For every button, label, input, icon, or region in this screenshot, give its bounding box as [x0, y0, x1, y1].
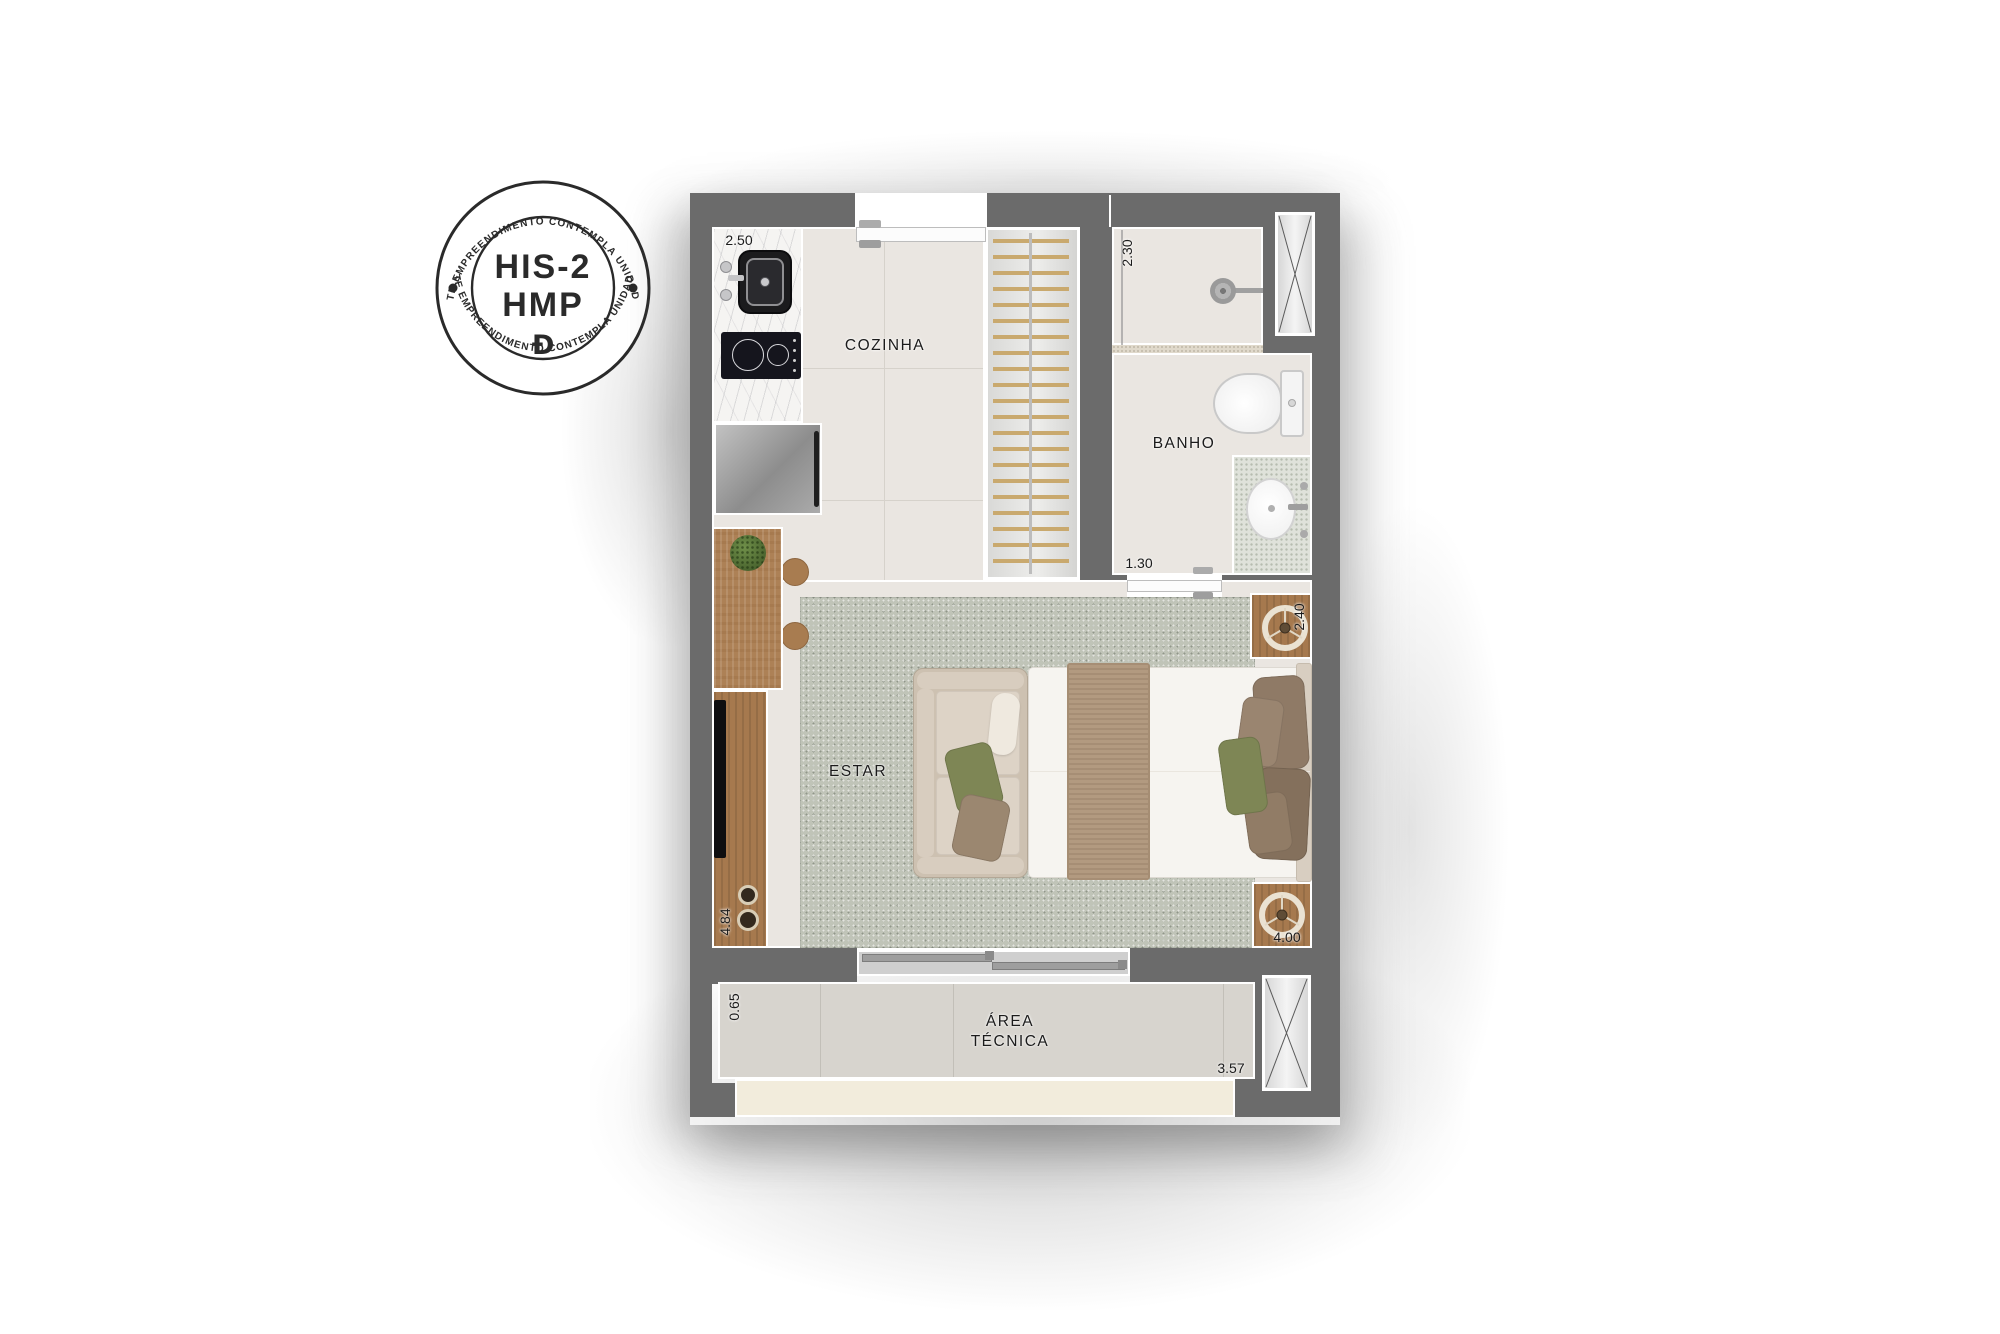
ventilation-shaft-bottom-icon: [1262, 975, 1311, 1091]
dim-label-living-width: 4.00: [1273, 929, 1300, 945]
sliding-door-handle-icon: [985, 951, 994, 960]
badge-title-line1: HIS-2: [495, 248, 592, 286]
wall-left-bottom-stub: [690, 1083, 735, 1117]
bathroom-door-handle-icon: [1193, 592, 1213, 599]
wall-kitchen-bath-divider: [1078, 193, 1112, 597]
dim-label-kitchen-width: 2.50: [725, 232, 752, 248]
wall-top-left: [690, 193, 855, 227]
badge-graphic: ESTE EMPREENDIMENTO CONTEMPLA UNIDADES E…: [433, 178, 653, 398]
washing-machine: [714, 423, 822, 515]
decor-bowl-icon: [738, 885, 758, 905]
stool-icon: [781, 622, 809, 650]
vanity-faucet-knob-icon: [1300, 530, 1308, 538]
dim-label-living-length: 4.84: [717, 908, 733, 935]
kitchen-faucet-icon: [720, 261, 732, 273]
kitchen-floor-seam: [884, 229, 885, 593]
dim-label-bath-length: 2.30: [1119, 239, 1135, 266]
tv-icon: [714, 700, 726, 858]
sliding-door-handle-icon: [1118, 960, 1127, 969]
shadow-right: [1310, 500, 1510, 1160]
sliding-door-panel: [992, 962, 1125, 970]
ventilation-shaft-top-icon: [1275, 212, 1315, 336]
dim-label-tech-area-width: 3.57: [1217, 1060, 1244, 1076]
kitchen-sink-drain-icon: [760, 277, 770, 287]
unit-type-badge: ESTE EMPREENDIMENTO CONTEMPLA UNIDADES E…: [433, 178, 653, 398]
badge-developer-logo-icon: Ɖ: [532, 330, 555, 361]
shower-threshold: [1112, 345, 1263, 353]
floor-plan: COZINHA BANHO ESTAR ÁREA TÉCNICA 2.50 2.…: [690, 193, 1340, 1125]
cooktop-burner-icon: [767, 344, 789, 366]
cooktop-burner-icon: [732, 339, 764, 371]
dim-label-bed-width: 2.40: [1291, 603, 1307, 630]
wardrobe-rod: [1029, 233, 1032, 574]
stool-icon: [781, 558, 809, 586]
page: ESTE EMPREENDIMENTO CONTEMPLA UNIDADES E…: [0, 0, 2000, 1334]
balcony-slab: [735, 1079, 1235, 1117]
shower-arm-icon: [1235, 288, 1263, 293]
badge-title-line2: HMP: [502, 286, 584, 324]
shower-head-icon: [1210, 278, 1236, 304]
toilet-flush-icon: [1288, 399, 1296, 407]
kitchen-faucet-icon: [720, 289, 732, 301]
bed-blanket: [1067, 663, 1150, 880]
cooktop-controls-icon: [793, 339, 796, 342]
vanity-faucet-knob-icon: [1300, 482, 1308, 490]
bathroom-door-handle-icon: [1193, 567, 1213, 574]
vanity-drain-icon: [1268, 505, 1275, 512]
entry-door-handle-icon: [859, 240, 881, 248]
vanity-faucet-icon: [1288, 504, 1308, 510]
kitchen-faucet-spout-icon: [728, 275, 744, 281]
sofa-armrest: [917, 857, 1024, 874]
sofa-armrest: [917, 672, 1024, 689]
tech-area-seam: [820, 984, 821, 1077]
washing-machine-handle-icon: [814, 431, 819, 507]
wall-seam-line: [1109, 195, 1111, 227]
toilet-bowl-icon: [1213, 373, 1282, 434]
sliding-door-panel: [862, 954, 992, 962]
room-label-cozinha: COZINHA: [845, 337, 925, 355]
wall-estar-bottom-left: [690, 948, 857, 984]
bathroom-door: [1127, 580, 1222, 592]
room-label-area-tecnica: ÁREA TÉCNICA: [954, 1012, 1066, 1052]
plant-icon: [730, 535, 766, 571]
entry-door-handle-icon: [859, 220, 881, 228]
room-label-banho: BANHO: [1153, 435, 1216, 453]
decor-bowl-icon: [737, 909, 759, 931]
dim-label-tech-area-depth: 0.65: [726, 993, 742, 1020]
sofa-backrest: [917, 689, 934, 857]
dim-label-bath-width: 1.30: [1125, 555, 1152, 571]
room-label-estar: ESTAR: [829, 763, 887, 781]
